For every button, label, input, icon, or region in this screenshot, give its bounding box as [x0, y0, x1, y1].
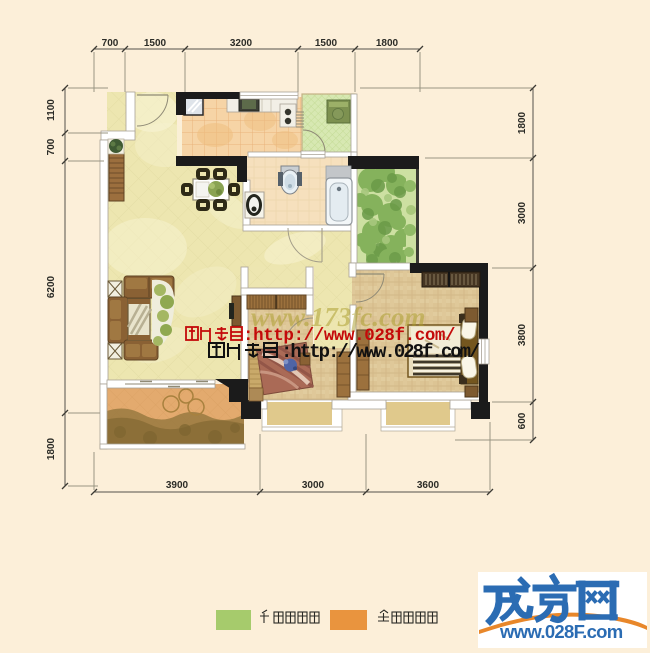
svg-text:1800: 1800	[376, 38, 399, 49]
svg-text:700: 700	[102, 38, 119, 49]
svg-text:3000: 3000	[302, 480, 325, 491]
svg-text:3600: 3600	[417, 480, 440, 491]
svg-text:1100: 1100	[46, 99, 57, 121]
svg-text:www.028F.com: www.028F.com	[499, 621, 623, 642]
svg-text:1500: 1500	[144, 38, 167, 49]
svg-text:1800: 1800	[517, 111, 528, 134]
svg-text:6200: 6200	[46, 275, 57, 298]
svg-text:3800: 3800	[517, 323, 528, 346]
svg-text:3000: 3000	[517, 201, 528, 224]
svg-text:700: 700	[46, 138, 57, 155]
svg-text:3900: 3900	[166, 480, 189, 491]
svg-text:1800: 1800	[46, 437, 57, 460]
svg-text:3200: 3200	[230, 38, 253, 49]
svg-text:1500: 1500	[315, 38, 338, 49]
svg-text::http://www.028f.com/: :http://www.028f.com/	[281, 341, 480, 363]
svg-text:600: 600	[517, 412, 528, 429]
